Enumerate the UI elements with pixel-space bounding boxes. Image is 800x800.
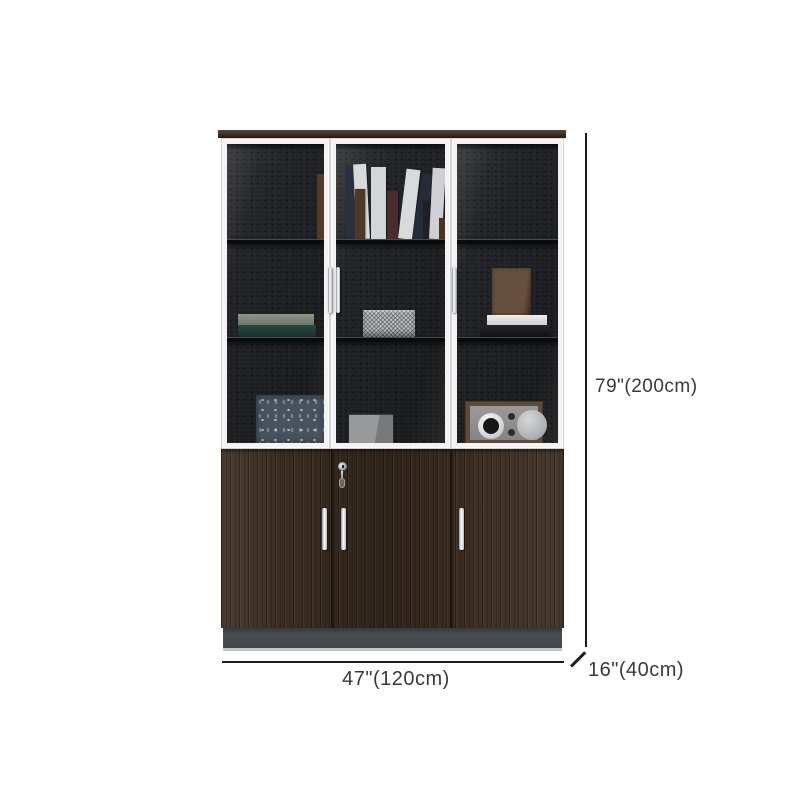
- shelf: [457, 239, 558, 244]
- door-gap: [331, 449, 334, 628]
- door-handle: [459, 508, 464, 550]
- height-dimension-line: [585, 133, 587, 647]
- shelf: [227, 239, 324, 244]
- glass-center: [336, 144, 445, 443]
- woven-basket: [363, 310, 415, 337]
- radio-dial: [483, 418, 499, 434]
- shelf: [457, 337, 558, 342]
- radio-speaker-disc: [517, 410, 547, 440]
- radio-knob: [508, 413, 515, 420]
- depth-dimension-tick: [570, 651, 586, 667]
- shelf: [227, 337, 324, 342]
- door-gap: [450, 449, 453, 628]
- shelf: [336, 239, 445, 244]
- glass-left: [227, 144, 324, 443]
- book-stack-bottom: [238, 325, 316, 337]
- cabinet-top-panel: [218, 130, 566, 138]
- book-spine: [355, 189, 365, 239]
- radio-knob: [508, 429, 515, 436]
- standing-book: [492, 268, 531, 315]
- radio-decor: [465, 401, 543, 443]
- radio-panel: [470, 406, 538, 440]
- glass-right: [457, 144, 558, 443]
- hanging-key: [339, 478, 345, 488]
- interior-shadow: [227, 144, 324, 151]
- storage-box: [349, 415, 393, 443]
- door-handle: [322, 508, 327, 550]
- glass-door-center: [330, 138, 451, 449]
- base-edge-highlight: [223, 648, 562, 651]
- depth-dimension-label: 16"(40cm): [588, 659, 684, 682]
- interior-shadow: [457, 144, 558, 151]
- glass-door-left: [221, 138, 330, 449]
- keyhole-icon: [342, 465, 344, 468]
- plinth-base: [223, 628, 562, 648]
- glass-door-right: [451, 138, 564, 449]
- speckled-art-board: [256, 395, 324, 443]
- book-stack-top: [238, 314, 314, 325]
- door-handle: [341, 508, 346, 550]
- book-spine: [439, 218, 445, 239]
- product-dimension-figure: 79"(200cm) 47"(120cm) 16"(40cm): [0, 0, 800, 800]
- book-spine: [387, 191, 398, 239]
- door-handle: [328, 267, 332, 313]
- door-handle: [452, 267, 456, 313]
- width-dimension-label: 47"(120cm): [296, 668, 496, 691]
- width-dimension-line: [222, 661, 564, 663]
- interior-shadow: [336, 144, 445, 151]
- height-dimension-label: 79"(200cm): [595, 376, 698, 398]
- dark-book-stack: [480, 325, 550, 337]
- wood-cabinet-lower: [221, 449, 564, 628]
- white-book-slab: [487, 315, 547, 325]
- book-spine: [317, 174, 324, 239]
- book-spine: [371, 167, 386, 239]
- door-handle: [336, 267, 340, 313]
- shelf: [336, 337, 445, 342]
